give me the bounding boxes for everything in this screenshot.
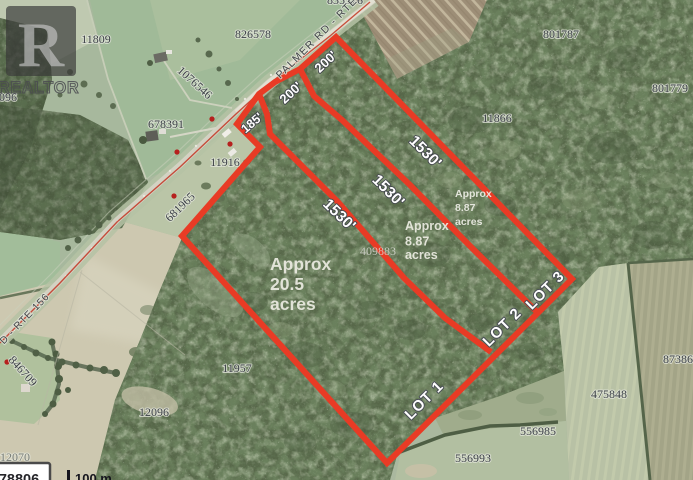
svg-text:87386: 87386 bbox=[663, 352, 693, 366]
svg-text:801787: 801787 bbox=[543, 27, 579, 41]
svg-text:Approx: Approx bbox=[455, 188, 492, 200]
svg-text:11866: 11866 bbox=[482, 111, 512, 125]
svg-text:R: R bbox=[18, 9, 65, 80]
svg-text:100 m: 100 m bbox=[75, 471, 112, 480]
svg-text:11809: 11809 bbox=[81, 32, 111, 46]
svg-text:409883: 409883 bbox=[360, 244, 396, 258]
svg-text:8.87: 8.87 bbox=[455, 202, 476, 214]
svg-text:801779: 801779 bbox=[652, 81, 688, 95]
svg-text:556985: 556985 bbox=[520, 424, 556, 438]
svg-text:8.87: 8.87 bbox=[405, 235, 429, 249]
svg-text:556993: 556993 bbox=[455, 451, 491, 465]
svg-text:678391: 678391 bbox=[148, 117, 184, 131]
svg-text:20.5: 20.5 bbox=[270, 274, 304, 294]
svg-text:12096: 12096 bbox=[139, 405, 169, 419]
svg-text:11916: 11916 bbox=[210, 155, 240, 169]
svg-text:826578: 826578 bbox=[235, 27, 271, 41]
svg-text:acres: acres bbox=[405, 248, 438, 262]
svg-text:11957: 11957 bbox=[222, 361, 252, 375]
svg-text:REALTOR: REALTOR bbox=[0, 79, 79, 97]
svg-text:acres: acres bbox=[455, 216, 483, 228]
svg-text:acres: acres bbox=[270, 294, 316, 314]
svg-text:Approx: Approx bbox=[405, 219, 449, 233]
svg-text:78806: 78806 bbox=[0, 472, 39, 480]
svg-text:Approx: Approx bbox=[270, 254, 332, 274]
svg-text:475848: 475848 bbox=[591, 387, 627, 401]
